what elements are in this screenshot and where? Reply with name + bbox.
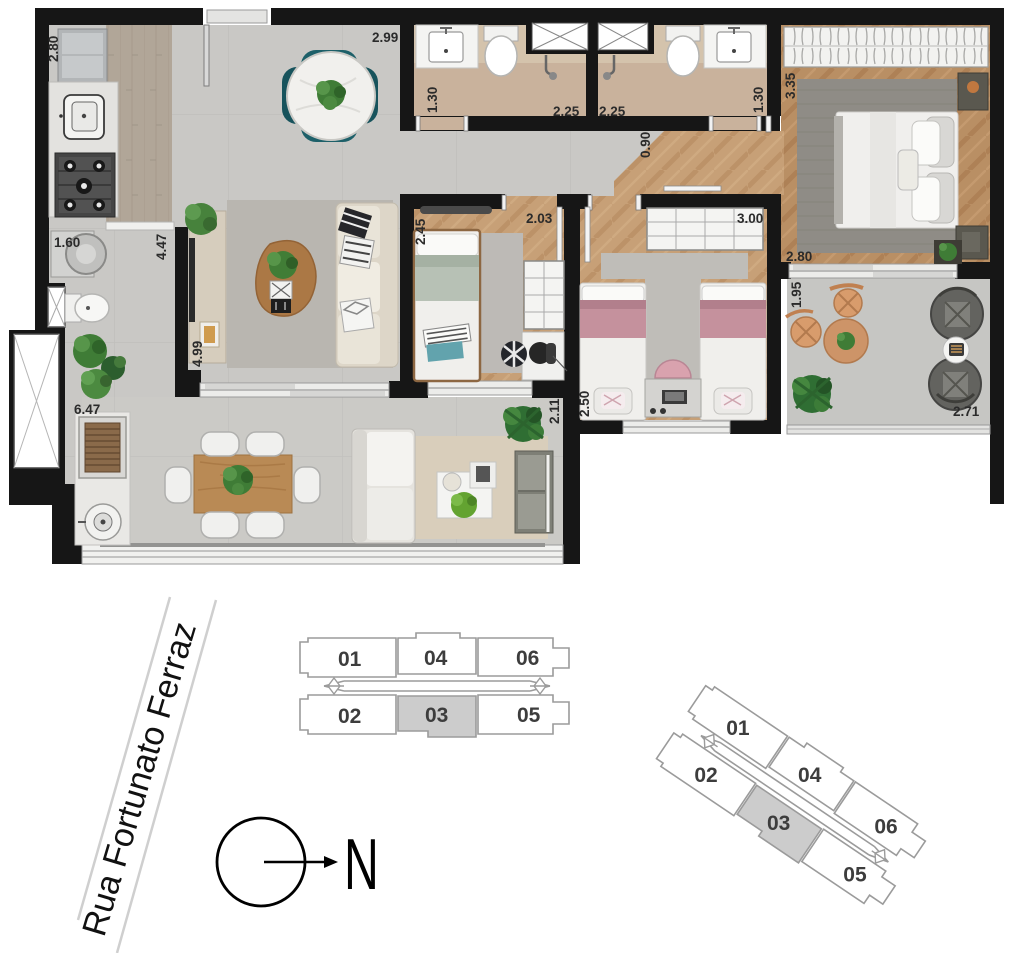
svg-text:01: 01 bbox=[726, 717, 750, 740]
svg-text:2.25: 2.25 bbox=[553, 104, 580, 119]
svg-text:1.30: 1.30 bbox=[751, 87, 766, 113]
svg-text:05: 05 bbox=[517, 704, 541, 727]
svg-text:03: 03 bbox=[767, 812, 790, 835]
svg-text:1.30: 1.30 bbox=[425, 87, 440, 113]
svg-text:03: 03 bbox=[425, 704, 448, 727]
svg-text:2.03: 2.03 bbox=[526, 211, 553, 226]
svg-text:4.47: 4.47 bbox=[154, 234, 169, 260]
svg-text:2.71: 2.71 bbox=[953, 404, 980, 419]
svg-text:04: 04 bbox=[798, 764, 822, 787]
svg-text:6.47: 6.47 bbox=[74, 402, 100, 417]
svg-text:N: N bbox=[344, 824, 379, 904]
svg-text:02: 02 bbox=[694, 764, 717, 787]
svg-text:01: 01 bbox=[338, 648, 362, 671]
svg-text:2.99: 2.99 bbox=[372, 30, 398, 45]
svg-text:2.25: 2.25 bbox=[599, 104, 626, 119]
svg-text:3.35: 3.35 bbox=[783, 72, 798, 99]
svg-text:06: 06 bbox=[516, 647, 539, 670]
svg-text:02: 02 bbox=[338, 705, 361, 728]
svg-text:2.80: 2.80 bbox=[46, 36, 61, 62]
svg-text:1.95: 1.95 bbox=[789, 281, 804, 308]
svg-text:2.11: 2.11 bbox=[547, 398, 562, 424]
svg-text:04: 04 bbox=[424, 647, 448, 670]
svg-text:1.60: 1.60 bbox=[54, 235, 80, 250]
svg-text:4.99: 4.99 bbox=[190, 341, 205, 367]
svg-text:2.80: 2.80 bbox=[786, 249, 812, 264]
svg-text:3.00: 3.00 bbox=[737, 211, 763, 226]
svg-text:05: 05 bbox=[843, 863, 867, 886]
svg-text:2.50: 2.50 bbox=[577, 391, 592, 417]
svg-text:06: 06 bbox=[874, 816, 897, 839]
svg-text:0.90: 0.90 bbox=[638, 132, 653, 158]
svg-text:2.45: 2.45 bbox=[413, 218, 428, 245]
